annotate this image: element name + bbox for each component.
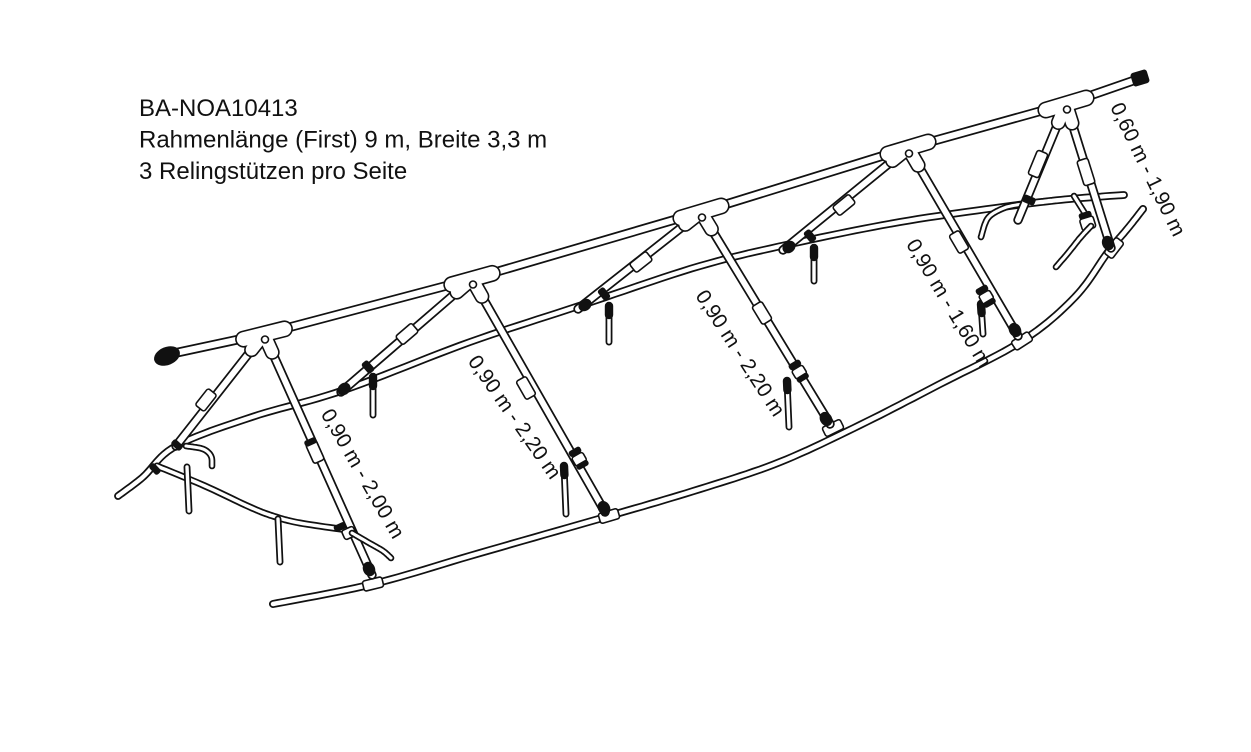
svg-text:Rahmenlänge (First) 9 m, Breit: Rahmenlänge (First) 9 m, Breite 3,3 m — [139, 127, 547, 154]
svg-text:3 Relingstützen pro Seite: 3 Relingstützen pro Seite — [139, 158, 407, 185]
svg-text:BA-NOA10413: BA-NOA10413 — [139, 95, 298, 122]
